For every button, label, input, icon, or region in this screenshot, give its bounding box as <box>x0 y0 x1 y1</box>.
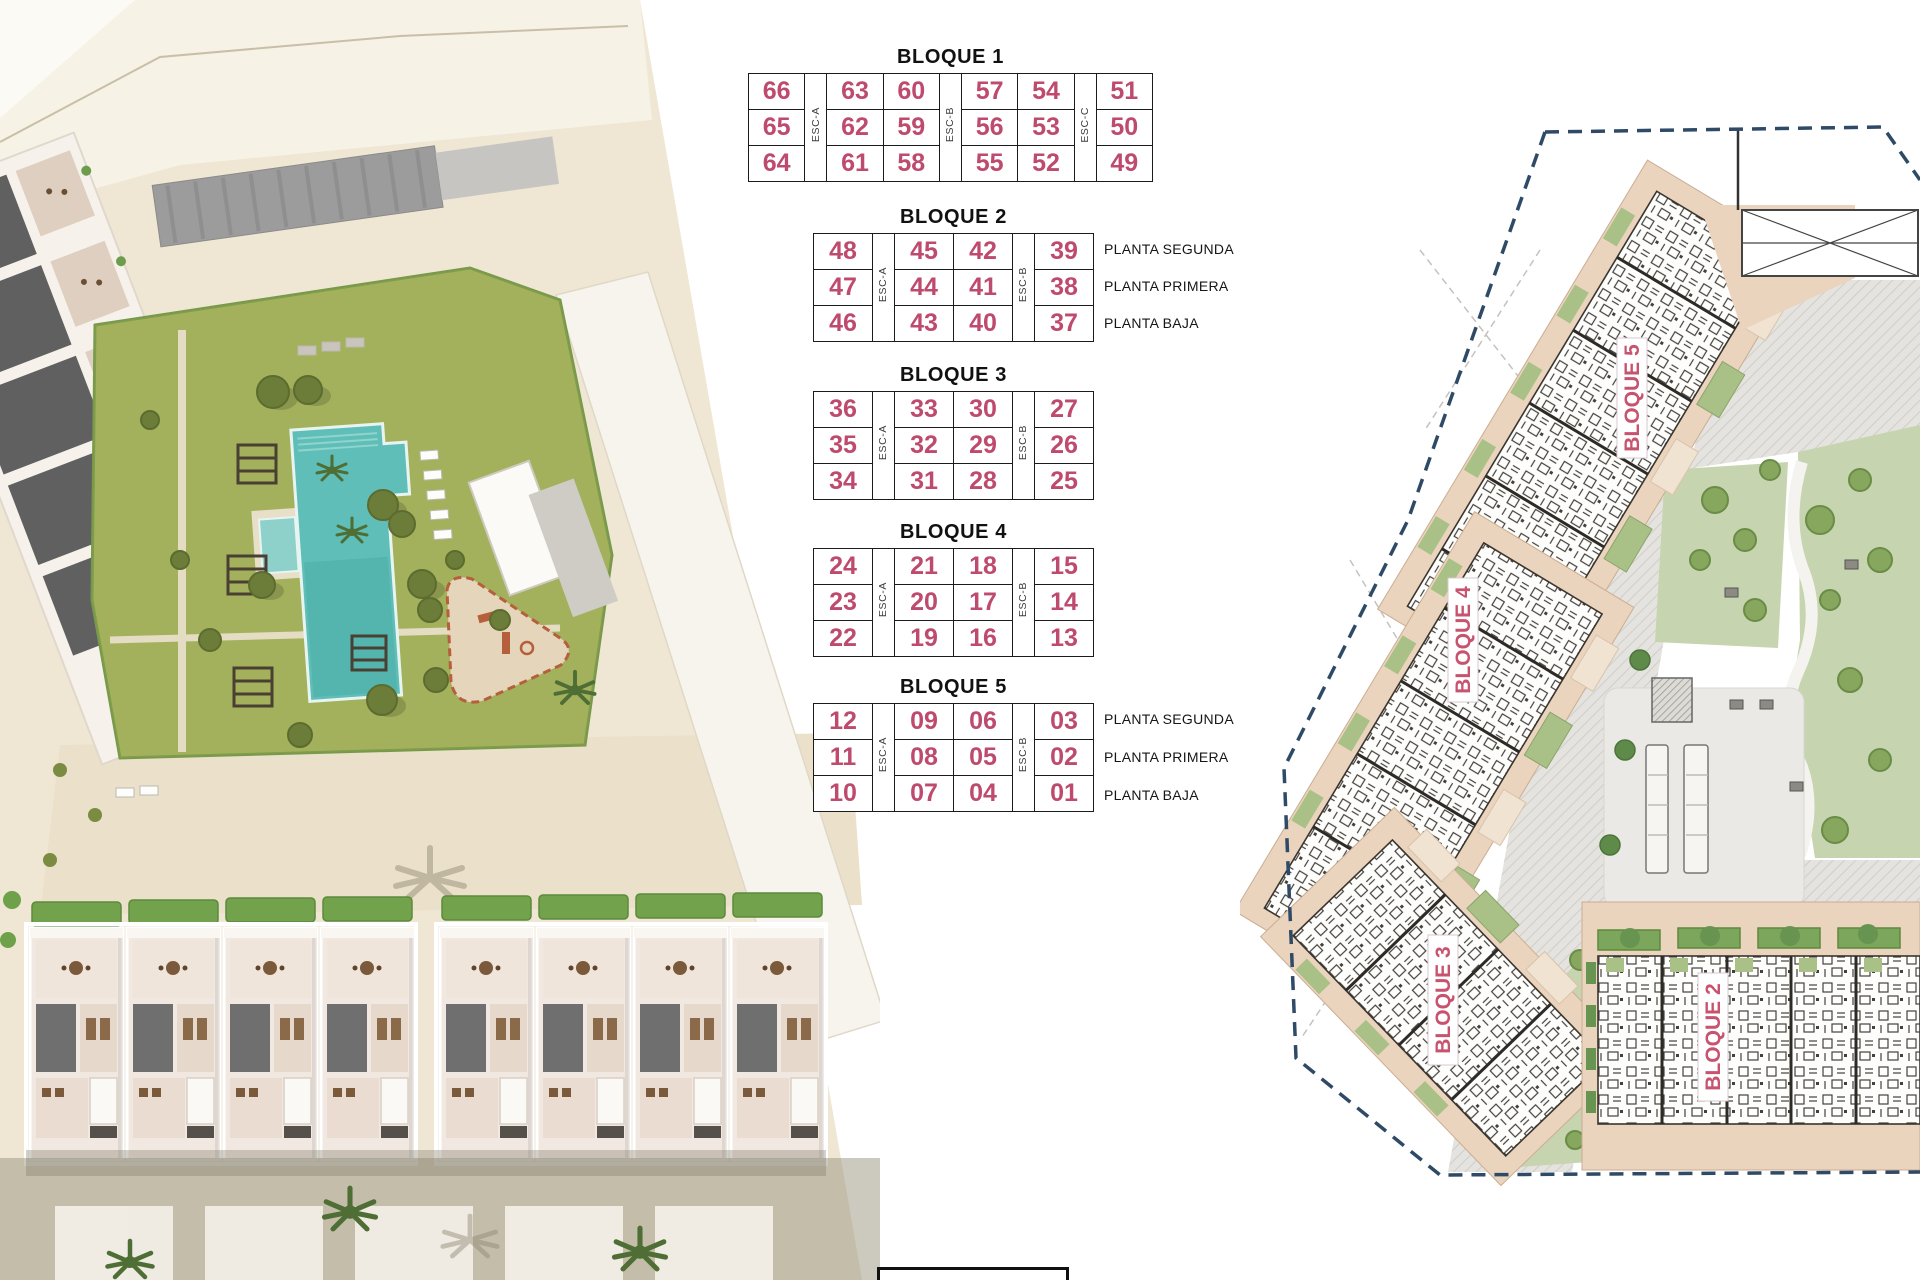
unit-number-cell: 06 <box>954 704 1013 740</box>
bloque-3-block: BLOQUE 3 36ESC-A3330ESC-B273532292634312… <box>813 364 1094 500</box>
stairwell-cell: ESC-A <box>873 392 895 500</box>
unit-number-cell: 28 <box>954 464 1013 500</box>
unit-number-cell: 41 <box>954 270 1013 306</box>
bloque-4-block: BLOQUE 4 24ESC-A2118ESC-B152320171422191… <box>813 521 1094 657</box>
unit-number-cell: 13 <box>1035 621 1094 657</box>
unit-number-cell: 57 <box>961 74 1017 110</box>
unit-number-cell: 03 <box>1035 704 1094 740</box>
unit-number-cell: 10 <box>814 776 873 812</box>
unit-number-cell: 26 <box>1035 428 1094 464</box>
unit-number-cell: 53 <box>1018 110 1074 146</box>
bloque-5-block: BLOQUE 5 12ESC-A0906ESC-B031108050210070… <box>813 676 1094 812</box>
unit-number-cell: 19 <box>895 621 954 657</box>
unit-number-cell: 15 <box>1035 549 1094 585</box>
unit-number-cell: 61 <box>827 146 883 182</box>
unit-number-cell: 21 <box>895 549 954 585</box>
unit-number-cell: 31 <box>895 464 954 500</box>
bloque-1-title: BLOQUE 1 <box>748 46 1153 69</box>
unit-number-cell: 35 <box>814 428 873 464</box>
bloque-4-title: BLOQUE 4 <box>813 521 1094 544</box>
bloque-2-grid: 48ESC-A4542ESC-B394744413846434037 <box>813 233 1094 342</box>
unit-number-cell: 22 <box>814 621 873 657</box>
unit-number-cell: 49 <box>1096 146 1152 182</box>
unit-number-cell: 01 <box>1035 776 1094 812</box>
unit-number-cell: 59 <box>883 110 939 146</box>
unit-number-cell: 50 <box>1096 110 1152 146</box>
stairwell-cell: ESC-C <box>1074 74 1096 182</box>
planta-label: PLANTA SEGUNDA <box>1104 712 1234 726</box>
unit-number-cell: 12 <box>814 704 873 740</box>
unit-number-cell: 39 <box>1035 234 1094 270</box>
unit-number-cell: 37 <box>1035 306 1094 342</box>
unit-number-cell: 20 <box>895 585 954 621</box>
bloque-5-planta-labels: PLANTA SEGUNDAPLANTA PRIMERAPLANTA BAJA <box>1104 700 1234 814</box>
unit-number-cell: 08 <box>895 740 954 776</box>
unit-number-cell: 64 <box>749 146 805 182</box>
unit-number-cell: 40 <box>954 306 1013 342</box>
unit-number-cell: 46 <box>814 306 873 342</box>
stairwell-cell: ESC-B <box>1013 392 1035 500</box>
stairwell-cell: ESC-B <box>1013 549 1035 657</box>
unit-number-cell: 09 <box>895 704 954 740</box>
stairwell-cell: ESC-B <box>939 74 961 182</box>
unit-number-cell: 14 <box>1035 585 1094 621</box>
development-brochure-page: BLOQUE 1 66ESC-A6360ESC-B5754ESC-C516562… <box>0 0 1920 1280</box>
unit-number-cell: 63 <box>827 74 883 110</box>
stairwell-cell: ESC-A <box>873 549 895 657</box>
unit-number-cell: 05 <box>954 740 1013 776</box>
bloque-5-grid: 12ESC-A0906ESC-B031108050210070401 <box>813 703 1094 812</box>
unit-number-cell: 62 <box>827 110 883 146</box>
plan-bloque-2-building <box>1582 902 1920 1170</box>
planta-label: PLANTA BAJA <box>1104 788 1234 802</box>
unit-number-cell: 16 <box>954 621 1013 657</box>
unit-number-cell: 17 <box>954 585 1013 621</box>
bloque-2-title: BLOQUE 2 <box>813 206 1094 229</box>
unit-number-cell: 32 <box>895 428 954 464</box>
unit-number-cell: 54 <box>1018 74 1074 110</box>
stairwell-cell: ESC-B <box>1013 234 1035 342</box>
bloque-1-block: BLOQUE 1 66ESC-A6360ESC-B5754ESC-C516562… <box>748 46 1153 182</box>
unit-number-cell: 43 <box>895 306 954 342</box>
plan-label-bloque-5: BLOQUE 5 <box>1621 344 1644 452</box>
unit-number-cell: 36 <box>814 392 873 428</box>
stairwell-cell: ESC-A <box>873 234 895 342</box>
site-plan: BLOQUE 5 BLOQUE 4 BLOQUE 3 BLOQUE 2 <box>1240 0 1920 1280</box>
unit-number-cell: 11 <box>814 740 873 776</box>
bloque-2-planta-labels: PLANTA SEGUNDAPLANTA PRIMERAPLANTA BAJA <box>1104 230 1234 342</box>
unit-number-cell: 33 <box>895 392 954 428</box>
unit-number-cell: 65 <box>749 110 805 146</box>
planta-label: PLANTA PRIMERA <box>1104 279 1234 293</box>
unit-number-cell: 58 <box>883 146 939 182</box>
plan-label-bloque-4: BLOQUE 4 <box>1452 586 1475 694</box>
unit-number-cell: 24 <box>814 549 873 585</box>
bloque-2-block: BLOQUE 2 48ESC-A4542ESC-B394744413846434… <box>813 206 1094 342</box>
unit-number-cell: 42 <box>954 234 1013 270</box>
unit-number-cell: 56 <box>961 110 1017 146</box>
unit-number-cell: 27 <box>1035 392 1094 428</box>
plan-label-bloque-2: BLOQUE 2 <box>1702 983 1725 1090</box>
planta-label: PLANTA SEGUNDA <box>1104 242 1234 256</box>
unit-number-cell: 02 <box>1035 740 1094 776</box>
bloque-3-grid: 36ESC-A3330ESC-B273532292634312825 <box>813 391 1094 500</box>
stairwell-cell: ESC-A <box>873 704 895 812</box>
render-townhouses <box>0 891 880 1280</box>
unit-number-cell: 23 <box>814 585 873 621</box>
unit-number-cell: 47 <box>814 270 873 306</box>
cutoff-table-box <box>877 1267 1069 1280</box>
unit-number-cell: 44 <box>895 270 954 306</box>
unit-number-cell: 48 <box>814 234 873 270</box>
unit-number-cell: 55 <box>961 146 1017 182</box>
unit-number-cell: 04 <box>954 776 1013 812</box>
plan-label-bloque-3: BLOQUE 3 <box>1432 946 1455 1053</box>
unit-number-cell: 60 <box>883 74 939 110</box>
unit-number-cell: 51 <box>1096 74 1152 110</box>
bloque-3-title: BLOQUE 3 <box>813 364 1094 387</box>
planta-label: PLANTA BAJA <box>1104 316 1234 330</box>
unit-number-cell: 52 <box>1018 146 1074 182</box>
unit-number-cell: 45 <box>895 234 954 270</box>
bloque-4-grid: 24ESC-A2118ESC-B152320171422191613 <box>813 548 1094 657</box>
unit-number-cell: 30 <box>954 392 1013 428</box>
plan-access-ramp <box>1738 128 1918 276</box>
unit-number-cell: 66 <box>749 74 805 110</box>
stairwell-cell: ESC-A <box>805 74 827 182</box>
aerial-render <box>0 0 880 1280</box>
stairwell-cell: ESC-B <box>1013 704 1035 812</box>
unit-number-cell: 25 <box>1035 464 1094 500</box>
unit-number-cell: 18 <box>954 549 1013 585</box>
unit-number-cell: 34 <box>814 464 873 500</box>
bloque-5-title: BLOQUE 5 <box>813 676 1094 699</box>
planta-label: PLANTA PRIMERA <box>1104 750 1234 764</box>
unit-number-cell: 38 <box>1035 270 1094 306</box>
unit-number-cell: 29 <box>954 428 1013 464</box>
bloque-1-grid: 66ESC-A6360ESC-B5754ESC-C516562595653506… <box>748 73 1153 182</box>
unit-number-cell: 07 <box>895 776 954 812</box>
